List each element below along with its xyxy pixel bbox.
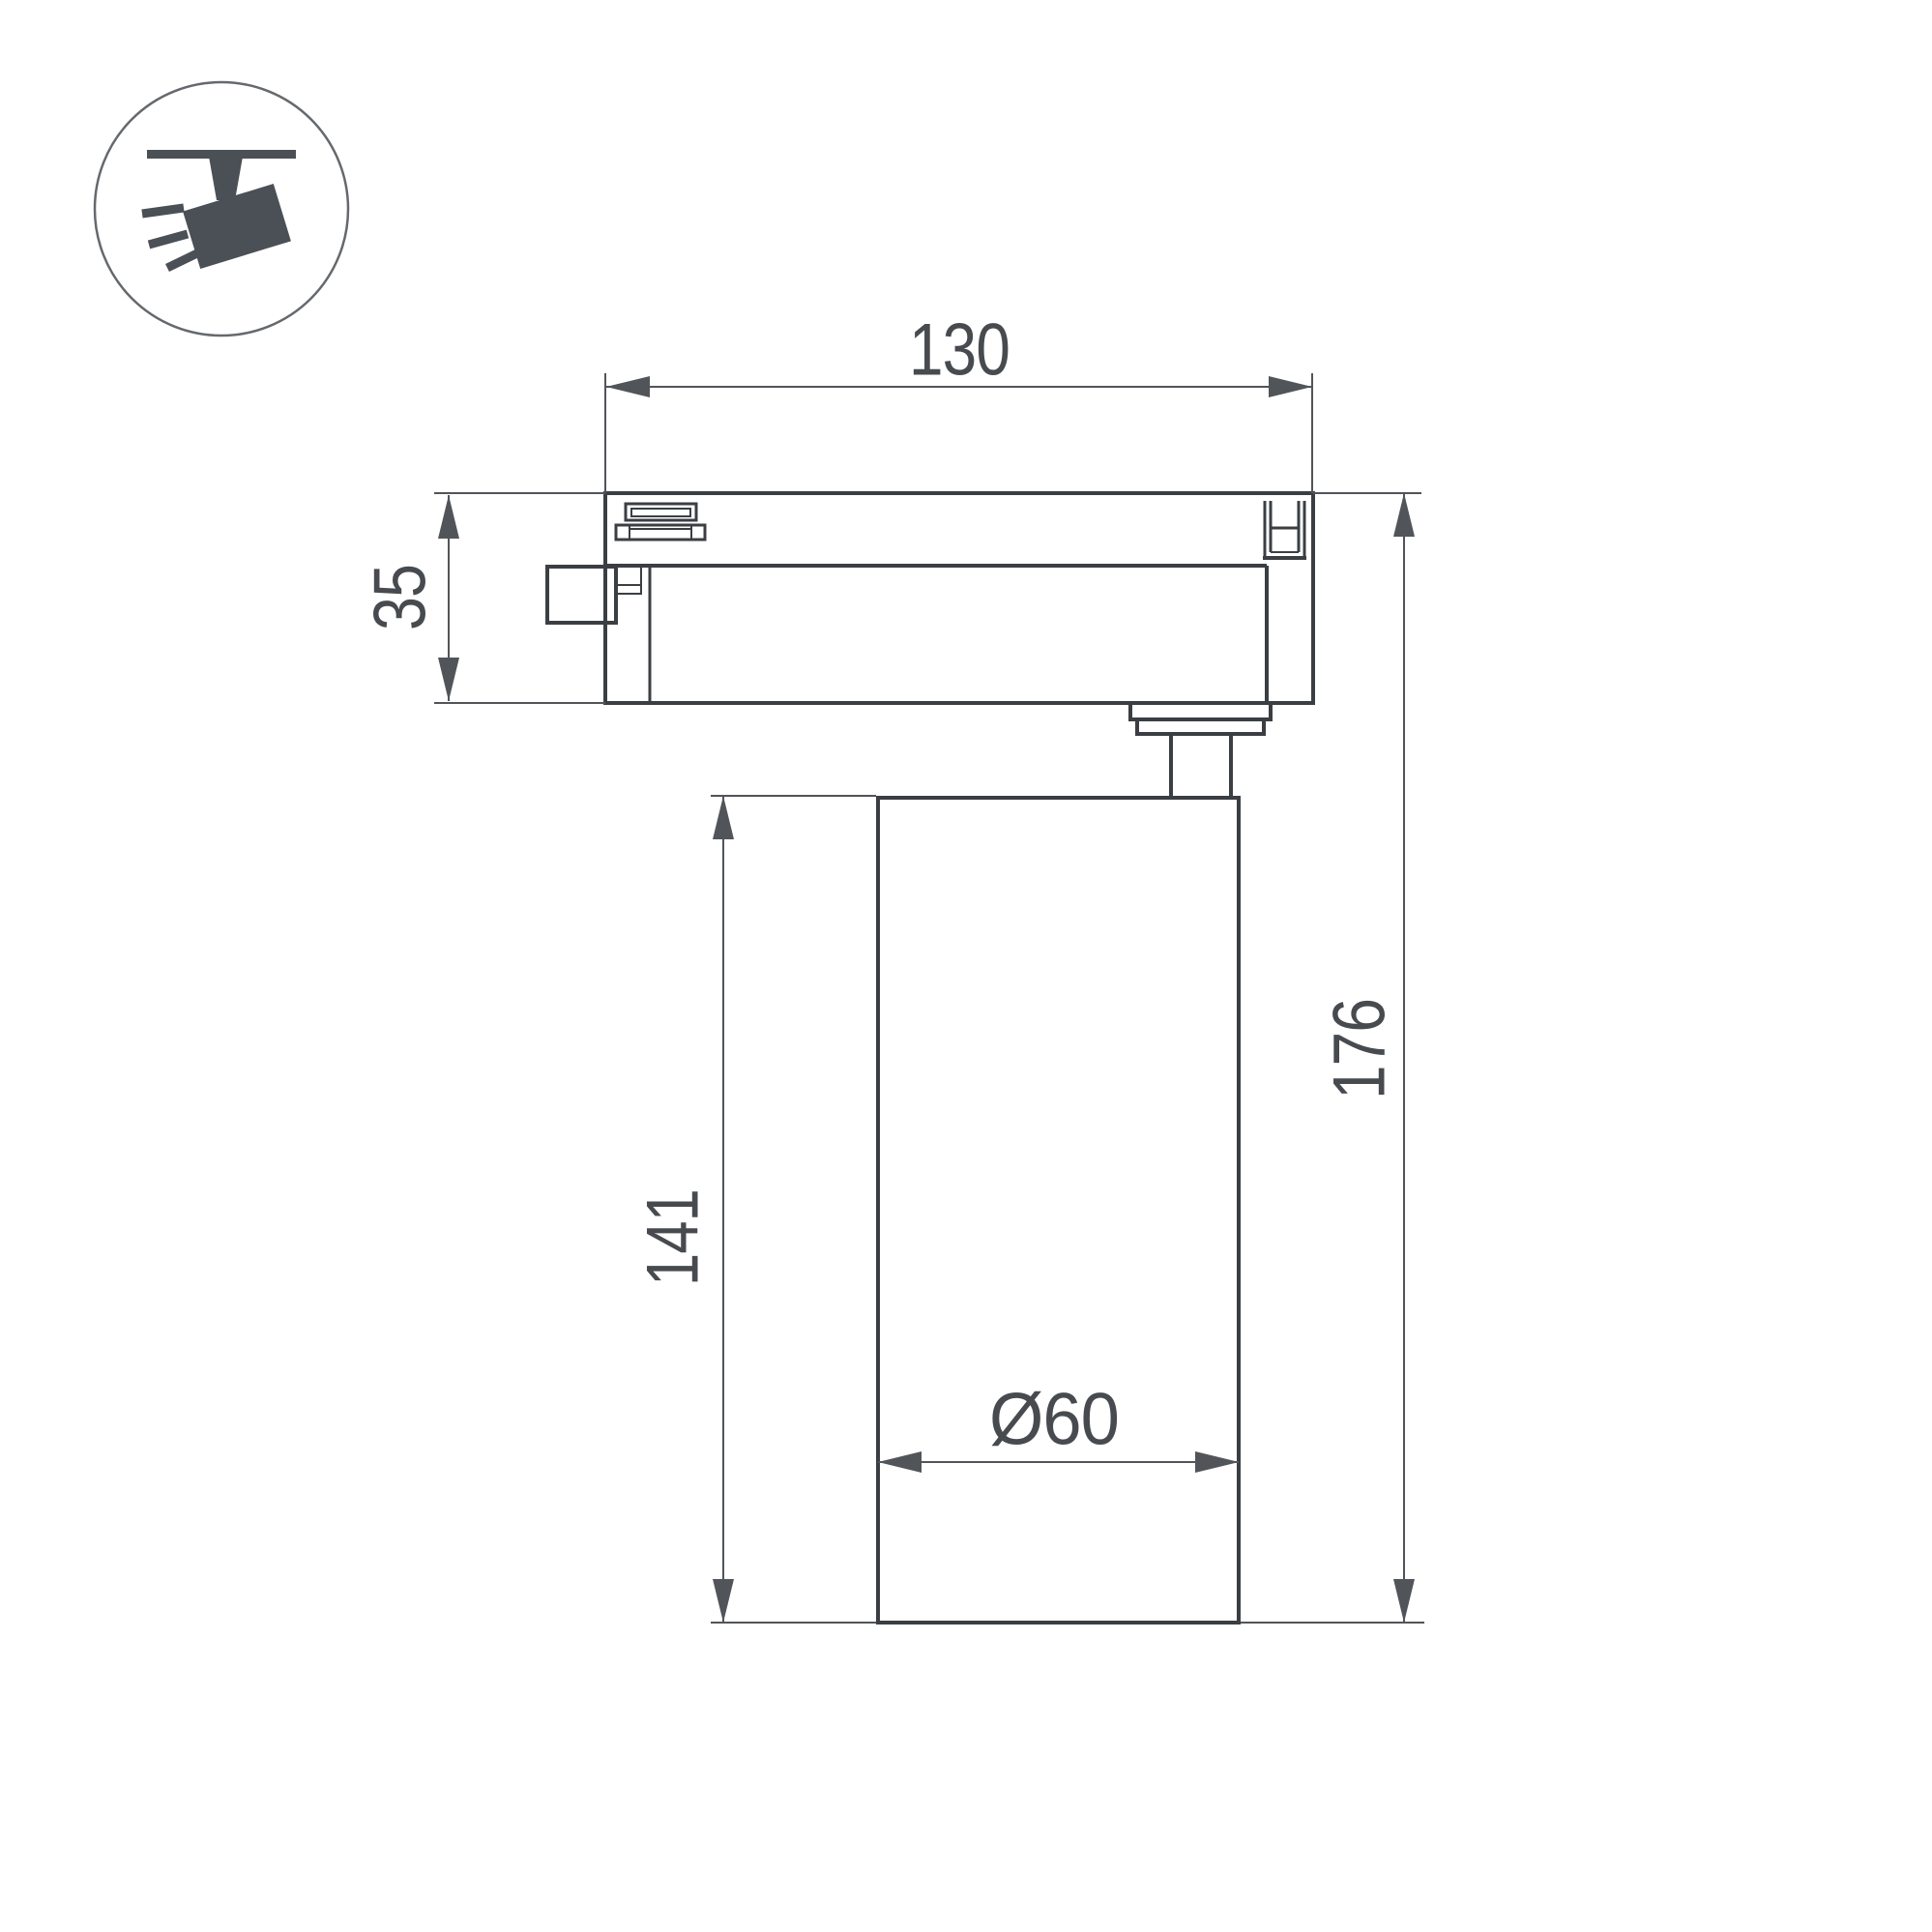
arrowhead-down xyxy=(438,658,459,701)
arrowhead-up xyxy=(1393,493,1415,537)
lamp-body-cylinder xyxy=(878,798,1239,1623)
dimension-body-diameter: Ø60 xyxy=(878,1379,1239,1474)
contact-clip-upper xyxy=(626,504,696,520)
light-ray-icon xyxy=(142,208,184,214)
arrowhead-up xyxy=(713,796,734,839)
arrowhead-down xyxy=(1393,1579,1415,1623)
neck-stem xyxy=(1171,734,1231,798)
arrowhead-right xyxy=(1195,1451,1239,1473)
arrowhead-left xyxy=(878,1451,922,1473)
dimension-adapter-height: 35 xyxy=(360,493,606,703)
contact-clip-upper-inner xyxy=(631,509,690,516)
neck-step-lower xyxy=(1137,719,1264,734)
dimension-label-adapter-height: 35 xyxy=(360,565,442,630)
swivel-neck-drawing xyxy=(1130,703,1271,798)
dimension-label-total-height: 176 xyxy=(1319,999,1401,1099)
dimension-body-height: 141 xyxy=(632,796,877,1623)
arrowhead-down xyxy=(713,1579,734,1623)
lever-notch xyxy=(616,585,641,594)
track-adapter-drawing xyxy=(547,493,1313,703)
adapter-outer-body xyxy=(605,493,1313,703)
dimension-label-body-height: 141 xyxy=(632,1189,715,1286)
arrowhead-left xyxy=(606,376,650,397)
dimension-track-width: 130 xyxy=(605,309,1312,494)
dimension-label-track-width: 130 xyxy=(909,309,1010,392)
arrowhead-right xyxy=(1269,376,1312,397)
dimension-label-body-diameter: Ø60 xyxy=(989,1379,1119,1461)
neck-step-upper xyxy=(1130,703,1271,719)
technical-drawing-canvas: 130 35 141 176 Ø60 xyxy=(0,0,1932,1932)
latch-channel xyxy=(1263,501,1306,558)
track-spotlight-icon xyxy=(95,82,348,336)
arrowhead-up xyxy=(438,495,459,539)
